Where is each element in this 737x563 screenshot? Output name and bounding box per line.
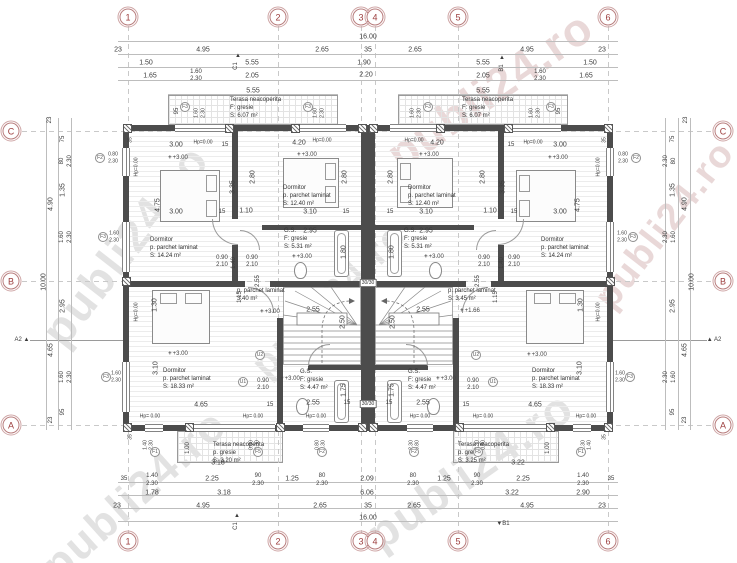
dim-line	[118, 67, 618, 68]
dim-label: ▲ A2	[707, 337, 722, 343]
grid-bubble-6: 6	[600, 9, 617, 26]
dim-label: 23	[683, 117, 689, 124]
room-label-line: p. parchet laminat	[283, 193, 331, 201]
level-value: +3.00	[302, 152, 317, 158]
dim-label: 1.60	[530, 108, 535, 118]
level-marker: ++3.00	[548, 155, 568, 161]
level-icon: +	[460, 308, 464, 314]
dim-label: 1.40	[499, 257, 505, 269]
grid-bubble-6: 6	[600, 533, 617, 550]
level-icon: +	[297, 152, 301, 158]
dim-label: 2.30	[618, 160, 628, 165]
dim-label: 3.35	[230, 180, 237, 194]
room-label-line: F: gresie	[230, 105, 281, 113]
dim-label: 35	[364, 47, 372, 54]
level-value: +3.00	[265, 309, 280, 315]
level-value: +1.66	[465, 308, 480, 314]
room-label-line: p. parchet laminat	[532, 376, 580, 384]
dim-label: 2.30	[663, 371, 669, 383]
dim-label: 4.95	[196, 503, 210, 510]
dim-label: 0.90	[257, 378, 269, 384]
dim-label: 3.00	[169, 209, 183, 216]
room-label-line: 3.40 m²	[237, 296, 285, 304]
pier-hatch	[369, 124, 378, 133]
dim-label: 1.80	[341, 245, 348, 259]
level-marker: ++3.00	[168, 351, 188, 357]
dim-label: 6.06	[360, 490, 374, 497]
level-marker: ++3.00	[424, 254, 444, 260]
room-label-line: G.S.	[300, 369, 328, 377]
room-label-line: Terasa neacoperita	[458, 442, 509, 450]
joinery-tag-f2: F2	[95, 153, 105, 163]
dim-label: 2.95	[670, 299, 677, 313]
dim-label: Hp= 0.00	[576, 415, 596, 420]
grid-bubble-A: A	[715, 417, 732, 434]
dim-label: C1	[233, 522, 239, 530]
dim-label: 2.30	[67, 371, 73, 383]
dim-label: 2.90	[576, 490, 590, 497]
dim-label: 2.30	[321, 108, 326, 118]
room-label: Dormitorp. parchet laminatS: 14.24 m²	[541, 237, 589, 260]
pier-hatch	[276, 423, 285, 432]
grid-bubble-2: 2	[270, 533, 287, 550]
dim-label: 1.60	[615, 372, 625, 377]
pier-hatch	[606, 277, 615, 286]
dim-label: 35	[129, 434, 134, 440]
dim-label: Hp=0.00	[404, 139, 423, 144]
dim-label: 1.25	[285, 476, 299, 483]
dim-label: B1	[499, 64, 505, 71]
dim-label: 2.30	[407, 481, 419, 487]
dim-label: 1.60	[671, 231, 677, 243]
joinery-tag-u1: U1	[488, 377, 498, 387]
dim-label: 2.10	[478, 262, 490, 268]
dim-label: 80	[410, 473, 417, 479]
room-label: Terasa neacoperitap. gresieS: 3.25 m²	[458, 442, 509, 465]
window	[296, 124, 346, 132]
dim-label: 1.40	[577, 473, 589, 479]
dim-label: 2.30	[537, 108, 542, 118]
pier-hatch	[291, 124, 300, 133]
room-label-line: G.S.	[284, 228, 312, 236]
dim-label: 1.40	[146, 473, 158, 479]
dim-label: Hp=0.00	[135, 157, 140, 176]
dim-label: 4.75	[155, 198, 162, 212]
level-icon: +	[548, 155, 552, 161]
section-line-A2-right	[613, 340, 707, 341]
dim-label: 2.80	[480, 170, 487, 184]
dim-label: 2.30	[111, 379, 121, 384]
dim-label: 4.20	[430, 140, 444, 147]
dim-line	[678, 118, 679, 430]
dim-label: 2.55	[416, 400, 430, 407]
staircase-right	[375, 287, 453, 365]
dim-label: 3.10	[303, 209, 317, 216]
dim-label: 2.30	[146, 481, 158, 487]
level-icon: +	[280, 376, 284, 382]
room-label-line: S: 5.31 m²	[284, 244, 312, 252]
window	[407, 424, 433, 432]
dim-label: 3.10	[419, 209, 433, 216]
bed	[152, 290, 210, 344]
window	[606, 362, 614, 412]
grid-bubble-1: 1	[120, 533, 137, 550]
window	[175, 124, 225, 132]
dim-label: 1.60	[671, 371, 677, 383]
grid-bubble-1: 1	[120, 9, 137, 26]
room-label-line: G.S.	[404, 228, 432, 236]
level-marker: ++3.00	[436, 376, 456, 382]
dim-label: 2.30	[663, 155, 669, 167]
dim-label: 23	[114, 47, 122, 54]
dim-label: 1.60	[617, 232, 627, 237]
room-label: Terasa neacoperitaF: gresieS: 6.07 m²	[230, 97, 281, 120]
dim-label: C1	[233, 62, 239, 70]
pier-hatch	[358, 124, 367, 133]
dim-label: 35	[364, 503, 372, 510]
grid-bubble-4: 4	[367, 533, 384, 550]
dim-label: 10.00	[41, 273, 48, 291]
dim-label: 1.60	[190, 69, 202, 75]
joinery-tag-f1: F1	[150, 447, 160, 457]
room-label: G.S.F: gresieS: 5.31 m²	[284, 228, 312, 251]
dim-label: 2.10	[216, 262, 228, 268]
grid-bubble-B: B	[715, 273, 732, 290]
room-label-line: Terasa neacoperita	[462, 97, 513, 105]
dim-label: 3.00	[553, 209, 567, 216]
room-label: Dormitorp. parchet laminatS: 12.40 m²	[283, 185, 331, 208]
dim-label: 95	[174, 108, 180, 115]
dim-label: 2.30	[252, 481, 264, 487]
dim-label: 15	[267, 402, 274, 408]
dim-label: 2.10	[508, 262, 520, 268]
room-label-line: F: gresie	[462, 105, 513, 113]
dim-label: 2.10	[257, 385, 269, 391]
joinery-tag-f3: F3	[303, 102, 313, 112]
dim-label: 2.95	[60, 299, 67, 313]
level-value: +3.00	[297, 254, 312, 260]
level-marker: ++3.00	[419, 152, 439, 158]
joinery-tag-f3: F3	[98, 232, 108, 242]
dim-label: 15	[343, 209, 350, 215]
dim-label: 4.75	[575, 198, 582, 212]
dim-label: 1.60	[195, 108, 200, 118]
dim-label: Hp= 0.00	[140, 415, 160, 420]
column-chip: 30/30	[360, 400, 377, 408]
room-label-line: S: 6.07 m²	[462, 113, 513, 121]
dim-label: 2.55	[255, 275, 261, 287]
dim-label: ▲	[499, 55, 505, 61]
dim-label: 2.30	[67, 155, 73, 167]
dim-label: 90	[255, 473, 262, 479]
room-label-line: Dormitor	[163, 368, 211, 376]
room-label-line: p. parchet laminat	[237, 288, 285, 296]
dim-label: 4.90	[48, 197, 55, 211]
dim-label: Hp= 0.00	[306, 415, 326, 420]
column-chip: 30/30	[360, 279, 377, 287]
pier-hatch	[358, 423, 367, 432]
room-label-line: Dormitor	[541, 237, 589, 245]
level-icon: +	[260, 309, 264, 315]
pier-hatch	[504, 124, 513, 133]
dim-label: 35	[121, 476, 128, 482]
room-label-line: F: gresie	[408, 377, 436, 385]
room-label-line: S: 4.47 m²	[408, 385, 436, 393]
dim-label: 2.50	[390, 315, 397, 329]
dim-label: 35	[603, 434, 608, 440]
pier-hatch	[123, 124, 132, 133]
dim-label: Hp=0.00	[523, 141, 542, 146]
dim-label: 2.09	[360, 476, 374, 483]
dim-label: 2.30	[190, 76, 202, 82]
dim-label: 1.60	[59, 371, 65, 383]
level-value: +3.00	[285, 376, 300, 382]
dim-label: 2.05	[245, 73, 259, 80]
dim-label: ▲	[234, 513, 240, 519]
dim-label: 15	[511, 209, 518, 215]
section-line-A2-left	[30, 340, 123, 341]
window	[145, 424, 163, 432]
level-icon: +	[424, 254, 428, 260]
pier-hatch	[123, 423, 132, 432]
dim-label: 1.35	[670, 183, 677, 197]
dim-label: 0.90	[467, 378, 479, 384]
dim-label: 23	[598, 503, 606, 510]
dim-label: 2.30	[316, 481, 328, 487]
joinery-tag-f5: F5	[253, 447, 263, 457]
dim-label: 3.00	[169, 142, 183, 149]
dim-label: 2.65	[407, 503, 421, 510]
room-label: Dormitorp. parchet laminatS: 14.24 m²	[150, 237, 198, 260]
grid-bubble-4: 4	[367, 9, 384, 26]
level-value: +3.00	[173, 351, 188, 357]
dim-label: 0.90	[246, 255, 258, 261]
room-label-line: F: gresie	[300, 377, 328, 385]
joinery-tag-f3: F3	[423, 102, 433, 112]
room-label-line: Dormitor	[150, 237, 198, 245]
dim-label: 90	[474, 473, 481, 479]
dim-label: Hp=0.00	[597, 157, 602, 176]
dim-label: 15	[219, 209, 226, 215]
dim-label: 1.00	[185, 442, 191, 454]
dim-label: 2.65	[313, 503, 327, 510]
level-marker: ++1.66	[460, 308, 480, 314]
dim-label: 2.65	[408, 47, 422, 54]
dim-label: 4.95	[520, 503, 534, 510]
level-marker: ++3.00	[292, 254, 312, 260]
dim-label: 3.35	[500, 180, 507, 194]
dim-label: 3.22	[511, 460, 525, 467]
room-label-line: S: 4.47 m²	[300, 385, 328, 393]
room-label-line: p. parchet laminat	[163, 376, 211, 384]
dim-label: 1.60	[534, 69, 546, 75]
dim-label: 75	[60, 136, 66, 143]
dim-label: 1.50	[139, 60, 153, 67]
dim-label: 1.40	[588, 440, 593, 450]
dim-label: 23	[47, 117, 53, 124]
room-label-line: S: 6.07 m²	[230, 113, 281, 121]
dim-line	[58, 118, 59, 430]
level-value: +3.00	[173, 155, 188, 161]
joinery-tag-f3: F3	[625, 372, 635, 382]
window	[122, 362, 130, 412]
dim-label: 80	[671, 158, 677, 165]
room-label-line: S: 3.25 m²	[458, 458, 509, 466]
dim-line	[118, 54, 618, 55]
dim-label: 1.60	[111, 372, 121, 377]
dim-label: 35	[603, 137, 608, 143]
dim-label: 0.80	[618, 153, 628, 158]
dim-label: 1.60	[59, 231, 65, 243]
dim-label: 0.90	[216, 255, 228, 261]
dim-label: 1.50	[583, 60, 597, 67]
dim-label: 0.90	[508, 255, 520, 261]
dim-label: 2.25	[516, 476, 530, 483]
grid-bubble-B: B	[3, 273, 20, 290]
dim-label: 1.30	[152, 298, 159, 312]
room-label-line: F: gresie	[404, 236, 432, 244]
dim-label: 1.25	[437, 476, 451, 483]
dim-label: Hp= 0.00	[410, 415, 430, 420]
wall-interior	[498, 131, 504, 219]
joinery-tag-u2: U2	[255, 350, 265, 360]
dim-label: 1.65	[579, 73, 593, 80]
dim-label: 2.05	[476, 73, 490, 80]
room-label: Terasa neacoperitaF: gresieS: 6.07 m²	[462, 97, 513, 120]
level-value: +3.00	[429, 254, 444, 260]
room-label: Dormitorp. parchet laminatS: 12.40 m²	[408, 185, 456, 208]
dim-label: 1.60	[109, 232, 119, 237]
dim-label: 95	[556, 108, 562, 115]
dim-label: Hp= 0.00	[473, 415, 493, 420]
pier-hatch	[604, 423, 613, 432]
room-label-line: p. parchet laminat	[541, 245, 589, 253]
room-label-line: p. parchet laminat	[448, 288, 496, 296]
level-icon: +	[527, 352, 531, 358]
dim-label: 15	[222, 142, 229, 148]
dim-label: 95	[60, 409, 66, 416]
room-label-line: Terasa neacoperita	[230, 97, 281, 105]
dim-label: 2.55	[475, 275, 481, 287]
dim-line	[118, 41, 618, 42]
level-marker: ++3.00	[280, 376, 300, 382]
dim-label: 80	[59, 158, 65, 165]
dim-label: 5.55	[476, 88, 490, 95]
dim-label: 35	[608, 476, 615, 482]
dim-label: 23	[682, 417, 688, 424]
dim-label: 0.80	[108, 153, 118, 158]
dim-label: 2.80	[250, 170, 257, 184]
staircase-left	[283, 287, 361, 365]
level-marker: ++3.00	[527, 352, 547, 358]
pier-hatch	[546, 423, 555, 432]
dim-label: 2.30	[109, 239, 119, 244]
bed	[526, 290, 584, 344]
dim-label: 4.65	[194, 402, 208, 409]
window	[511, 124, 561, 132]
dim-label: 2.55	[306, 307, 320, 314]
dim-label: Hp=0.00	[193, 141, 212, 146]
dim-label: 3.00	[553, 142, 567, 149]
dim-label: 2.30	[471, 481, 483, 487]
window	[606, 148, 614, 176]
toilet	[294, 262, 307, 279]
room-label: G.S.F: gresieS: 5.31 m²	[404, 228, 432, 251]
joinery-tag-u1: U1	[238, 377, 248, 387]
dim-label: 4.90	[682, 197, 689, 211]
dim-label: 2.30	[202, 108, 207, 118]
dim-label: 2.55	[416, 307, 430, 314]
level-icon: +	[419, 152, 423, 158]
dim-label: 1.60	[411, 108, 416, 118]
dim-label: 2.65	[315, 47, 329, 54]
dim-label: 2.25	[205, 476, 219, 483]
wall-party	[361, 125, 375, 431]
room-label-line: S: 18.33 m²	[532, 384, 580, 392]
dim-label: 15	[387, 209, 394, 215]
dim-label: 2.80	[388, 170, 395, 184]
level-marker: ++3.00	[297, 152, 317, 158]
wall-interior	[453, 318, 459, 425]
window	[303, 424, 329, 432]
dim-label: 2.30	[67, 231, 73, 243]
dim-label: Hp=0.00	[312, 139, 331, 144]
dim-label: 4.65	[528, 402, 542, 409]
room-label: Dormitorp. parchet laminatS: 18.33 m²	[532, 368, 580, 391]
dim-label: 2.30	[663, 231, 669, 243]
room-label-line: G.S.	[408, 369, 436, 377]
dim-label: 2.30	[617, 239, 627, 244]
dim-label: 1.00	[545, 442, 551, 454]
joinery-tag-f3: F3	[101, 372, 111, 382]
dim-label: 3.22	[505, 490, 519, 497]
level-value: +3.00	[424, 152, 439, 158]
dim-label: ▲	[235, 53, 241, 59]
room-label-line: S: 12.40 m²	[283, 201, 331, 209]
room-label: Dormitorp. parchet laminatS: 18.33 m²	[163, 368, 211, 391]
room-label-line: Dormitor	[532, 368, 580, 376]
dim-label: 2.10	[246, 262, 258, 268]
dim-label: 2.30	[577, 481, 589, 487]
dim-label: 23	[598, 47, 606, 54]
room-label-line: S: 14.24 m²	[150, 253, 198, 261]
room-label: G.S.F: gresieS: 4.47 m²	[300, 369, 328, 392]
room-label-line: p. parchet laminat	[408, 193, 456, 201]
dim-label: 4.95	[520, 47, 534, 54]
dim-label: 1.65	[143, 73, 157, 80]
dim-label: 2.30	[418, 108, 423, 118]
dim-label: 1.90	[357, 60, 371, 67]
grid-bubble-5: 5	[450, 533, 467, 550]
dim-label: 16.00	[359, 515, 377, 522]
dim-label: 23	[113, 503, 121, 510]
dim-label: 2.10	[467, 385, 479, 391]
dim-label: 1.30	[578, 298, 585, 312]
window	[606, 222, 614, 272]
pier-hatch	[369, 423, 378, 432]
level-icon: +	[168, 155, 172, 161]
level-value: +3.00	[441, 376, 456, 382]
joinery-tag-f2: F2	[317, 447, 327, 457]
dim-label: 5.55	[476, 60, 490, 67]
level-marker: ++3.00	[168, 155, 188, 161]
dim-label: 2.30	[108, 160, 118, 165]
dim-label: 5.55	[246, 88, 260, 95]
grid-bubble-5: 5	[450, 9, 467, 26]
joinery-tag-f3: F3	[546, 102, 556, 112]
room-label-line: S: 14.24 m²	[541, 253, 589, 261]
grid-bubble-C: C	[3, 123, 20, 140]
